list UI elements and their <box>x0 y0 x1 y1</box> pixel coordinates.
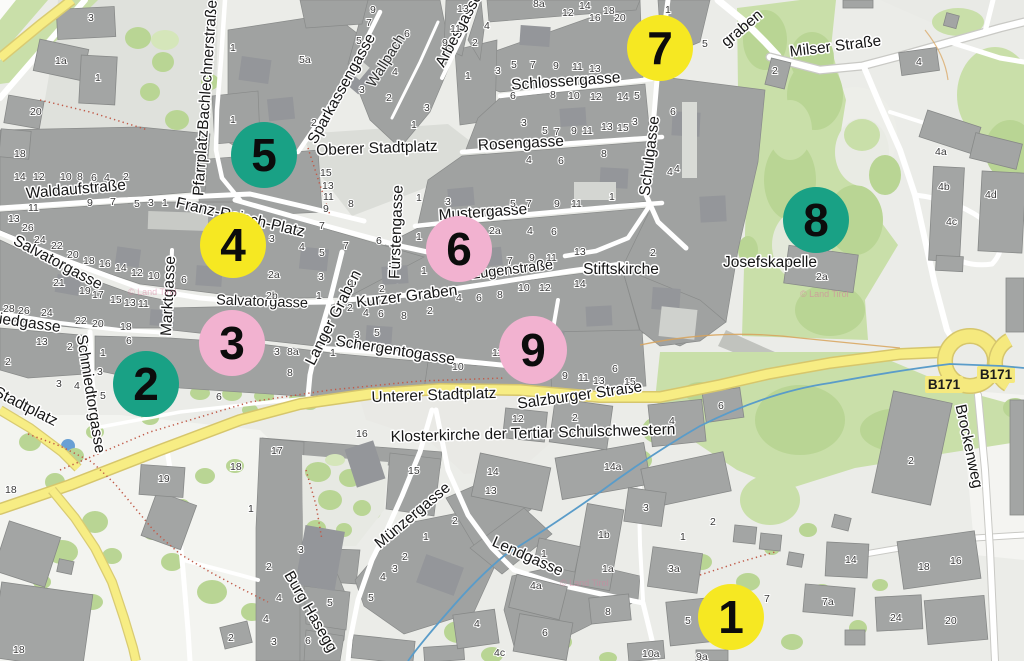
svg-text:8: 8 <box>550 89 556 101</box>
svg-text:3: 3 <box>445 196 451 208</box>
svg-text:3: 3 <box>271 636 277 648</box>
svg-text:6: 6 <box>91 172 97 184</box>
svg-text:11: 11 <box>28 202 39 214</box>
svg-text:1: 1 <box>330 347 336 359</box>
svg-text:12: 12 <box>512 413 524 425</box>
svg-text:26: 26 <box>18 305 30 317</box>
svg-text:4: 4 <box>104 172 110 184</box>
svg-text:14: 14 <box>115 262 127 274</box>
svg-text:5: 5 <box>368 592 374 604</box>
svg-text:Salvatorgasse: Salvatorgasse <box>216 292 308 311</box>
svg-text:3a: 3a <box>668 563 680 575</box>
svg-text:17: 17 <box>271 445 283 457</box>
svg-text:15: 15 <box>624 376 636 388</box>
svg-text:4: 4 <box>474 618 480 630</box>
svg-text:2: 2 <box>228 632 234 644</box>
svg-text:3: 3 <box>148 197 154 209</box>
svg-text:7: 7 <box>110 196 116 208</box>
svg-text:8: 8 <box>77 171 83 183</box>
svg-text:4: 4 <box>363 307 369 319</box>
svg-text:2: 2 <box>772 65 778 77</box>
svg-text:2: 2 <box>379 283 385 295</box>
svg-text:1a: 1a <box>602 563 614 575</box>
svg-text:5: 5 <box>251 129 277 181</box>
svg-text:5: 5 <box>327 597 333 609</box>
svg-text:10: 10 <box>60 171 72 183</box>
svg-text:3: 3 <box>56 378 62 390</box>
svg-text:13: 13 <box>457 3 469 15</box>
svg-text:2a: 2a <box>268 269 280 281</box>
svg-text:6: 6 <box>378 308 384 320</box>
svg-text:4: 4 <box>392 66 398 78</box>
svg-text:11: 11 <box>571 198 582 210</box>
svg-text:2: 2 <box>472 37 478 49</box>
svg-text:13: 13 <box>8 213 20 225</box>
svg-text:9: 9 <box>442 37 448 49</box>
svg-text:9: 9 <box>562 370 568 382</box>
svg-text:6: 6 <box>670 106 676 118</box>
svg-text:15: 15 <box>617 122 629 134</box>
svg-text:13: 13 <box>36 336 48 348</box>
svg-text:1: 1 <box>718 591 744 643</box>
svg-text:13: 13 <box>485 485 497 497</box>
svg-text:18: 18 <box>83 255 95 267</box>
svg-text:5: 5 <box>100 390 106 402</box>
svg-text:4: 4 <box>276 592 282 604</box>
svg-text:28: 28 <box>3 303 15 315</box>
svg-text:5: 5 <box>134 198 140 210</box>
svg-text:8: 8 <box>601 148 607 160</box>
svg-text:9: 9 <box>553 60 559 72</box>
svg-text:13: 13 <box>574 246 586 258</box>
svg-text:5: 5 <box>511 59 517 71</box>
svg-text:2: 2 <box>427 305 433 317</box>
svg-text:9: 9 <box>87 197 93 209</box>
svg-text:20: 20 <box>30 106 42 118</box>
svg-text:2: 2 <box>123 171 129 183</box>
svg-text:4: 4 <box>669 415 675 427</box>
svg-text:8: 8 <box>497 289 503 301</box>
svg-text:10: 10 <box>452 361 464 373</box>
svg-text:2: 2 <box>347 302 353 314</box>
svg-text:4: 4 <box>526 154 532 166</box>
svg-text:9: 9 <box>529 252 535 264</box>
svg-text:3: 3 <box>88 12 94 24</box>
svg-text:3: 3 <box>392 563 398 575</box>
svg-text:14: 14 <box>845 554 857 566</box>
svg-text:14: 14 <box>617 91 629 103</box>
svg-text:6: 6 <box>126 335 132 347</box>
svg-text:10: 10 <box>148 270 160 282</box>
svg-text:13: 13 <box>593 375 605 387</box>
svg-text:10: 10 <box>568 90 580 102</box>
svg-text:6: 6 <box>476 292 482 304</box>
svg-text:2: 2 <box>266 561 272 573</box>
svg-text:4: 4 <box>916 56 922 68</box>
svg-text:4: 4 <box>527 225 533 237</box>
svg-text:7: 7 <box>319 220 325 232</box>
svg-text:19: 19 <box>79 285 91 297</box>
svg-text:14: 14 <box>574 278 586 290</box>
svg-text:9: 9 <box>370 4 376 16</box>
svg-text:6: 6 <box>551 226 557 238</box>
svg-text:1: 1 <box>230 114 236 126</box>
svg-text:7: 7 <box>526 198 532 210</box>
svg-text:8: 8 <box>605 606 611 618</box>
svg-text:15: 15 <box>408 465 420 477</box>
svg-text:6: 6 <box>181 274 187 286</box>
svg-text:16: 16 <box>356 428 368 440</box>
svg-text:24: 24 <box>890 612 902 624</box>
svg-text:1: 1 <box>541 548 547 560</box>
svg-text:3: 3 <box>643 502 649 514</box>
svg-text:3: 3 <box>424 102 430 114</box>
svg-text:8a: 8a <box>533 0 545 10</box>
svg-text:© Land Tirol: © Land Tirol <box>560 578 609 588</box>
svg-text:22: 22 <box>75 315 87 327</box>
svg-text:2: 2 <box>452 515 458 527</box>
svg-text:11: 11 <box>572 61 583 73</box>
svg-text:4: 4 <box>484 20 490 32</box>
svg-text:16: 16 <box>99 258 111 270</box>
svg-text:12: 12 <box>562 7 574 19</box>
svg-text:7: 7 <box>764 593 770 605</box>
svg-text:10a: 10a <box>642 648 660 660</box>
svg-text:2: 2 <box>133 358 159 410</box>
svg-text:6: 6 <box>612 363 618 375</box>
svg-text:13: 13 <box>589 63 601 75</box>
svg-text:18: 18 <box>5 484 17 496</box>
svg-text:11: 11 <box>138 298 149 310</box>
svg-text:18: 18 <box>14 148 26 160</box>
svg-text:9: 9 <box>520 324 546 376</box>
svg-text:B171: B171 <box>980 367 1013 382</box>
svg-text:14: 14 <box>487 466 499 478</box>
svg-text:1: 1 <box>465 70 471 82</box>
svg-text:6: 6 <box>446 223 472 275</box>
svg-text:5: 5 <box>685 615 691 627</box>
svg-text:1: 1 <box>680 531 686 543</box>
svg-text:2: 2 <box>67 341 73 353</box>
svg-text:Fürstengasse: Fürstengasse <box>386 185 406 279</box>
svg-text:5: 5 <box>319 247 325 259</box>
svg-text:1: 1 <box>95 72 101 84</box>
svg-text:1: 1 <box>100 347 106 359</box>
svg-text:2: 2 <box>650 247 656 259</box>
svg-text:11: 11 <box>582 125 593 137</box>
svg-text:6: 6 <box>542 627 548 639</box>
svg-text:4b: 4b <box>938 181 950 193</box>
svg-text:12: 12 <box>33 171 45 183</box>
svg-text:1: 1 <box>162 197 168 209</box>
svg-text:3: 3 <box>269 233 275 245</box>
svg-text:18: 18 <box>230 461 242 473</box>
svg-text:© Land Tirol: © Land Tirol <box>128 287 177 297</box>
svg-text:6: 6 <box>216 391 222 403</box>
svg-text:5: 5 <box>542 125 548 137</box>
svg-text:4: 4 <box>456 292 462 304</box>
svg-text:6: 6 <box>718 400 724 412</box>
svg-text:8a: 8a <box>287 346 299 358</box>
svg-text:4d: 4d <box>985 189 997 201</box>
svg-text:5: 5 <box>634 90 640 102</box>
svg-text:6: 6 <box>558 155 564 167</box>
svg-text:8: 8 <box>401 310 407 322</box>
svg-text:4a: 4a <box>935 146 947 158</box>
svg-text:13: 13 <box>601 121 613 133</box>
svg-text:6: 6 <box>404 28 410 40</box>
svg-text:1: 1 <box>411 119 417 131</box>
svg-text:16: 16 <box>589 12 601 24</box>
svg-text:11: 11 <box>450 23 461 35</box>
svg-text:3: 3 <box>298 544 304 556</box>
svg-text:4: 4 <box>674 163 680 175</box>
svg-text:17: 17 <box>92 289 104 301</box>
svg-text:14: 14 <box>14 171 26 183</box>
svg-text:1: 1 <box>316 290 322 302</box>
svg-text:1: 1 <box>416 192 422 204</box>
svg-text:20: 20 <box>92 318 104 330</box>
svg-text:7: 7 <box>554 126 560 138</box>
svg-text:20: 20 <box>67 249 79 261</box>
svg-text:14a: 14a <box>604 461 622 473</box>
svg-text:3: 3 <box>318 271 324 283</box>
svg-text:Stiftskirche: Stiftskirche <box>583 261 659 278</box>
svg-text:24: 24 <box>41 307 53 319</box>
svg-text:14: 14 <box>579 0 591 12</box>
svg-text:2b: 2b <box>266 290 278 302</box>
svg-text:3: 3 <box>521 117 527 129</box>
svg-text:5: 5 <box>702 38 708 50</box>
svg-text:12: 12 <box>590 91 602 103</box>
svg-text:1a: 1a <box>55 55 67 67</box>
svg-text:2a: 2a <box>816 271 828 283</box>
svg-text:4: 4 <box>667 166 673 178</box>
svg-text:4: 4 <box>263 613 269 625</box>
svg-text:7: 7 <box>647 22 673 74</box>
svg-text:5: 5 <box>510 198 516 210</box>
svg-text:9: 9 <box>554 198 560 210</box>
svg-text:5: 5 <box>356 35 362 47</box>
svg-text:6: 6 <box>305 635 311 647</box>
svg-text:7: 7 <box>530 59 536 71</box>
svg-text:2: 2 <box>311 117 317 129</box>
svg-text:2: 2 <box>402 551 408 563</box>
svg-text:22: 22 <box>51 240 63 252</box>
svg-text:1: 1 <box>416 231 422 243</box>
svg-text:26: 26 <box>22 222 34 234</box>
svg-text:16: 16 <box>950 555 962 567</box>
svg-text:4: 4 <box>299 241 305 253</box>
svg-text:1: 1 <box>421 265 427 277</box>
svg-text:20: 20 <box>614 12 626 24</box>
svg-text:5: 5 <box>374 327 380 339</box>
svg-text:7a: 7a <box>822 596 834 608</box>
svg-text:12: 12 <box>131 267 143 279</box>
svg-text:11: 11 <box>546 252 557 264</box>
svg-text:9a: 9a <box>696 651 708 661</box>
svg-text:9: 9 <box>571 125 577 137</box>
svg-text:7: 7 <box>343 240 349 252</box>
svg-text:4: 4 <box>380 571 386 583</box>
svg-text:4: 4 <box>74 380 80 392</box>
svg-text:6: 6 <box>376 235 382 247</box>
svg-text:3: 3 <box>219 317 245 369</box>
svg-text:2: 2 <box>710 516 716 528</box>
svg-text:18: 18 <box>918 561 930 573</box>
svg-text:2: 2 <box>572 412 578 424</box>
svg-text:10: 10 <box>518 282 530 294</box>
svg-text:2: 2 <box>386 92 392 104</box>
svg-text:3: 3 <box>274 346 280 358</box>
svg-text:3: 3 <box>354 329 360 341</box>
svg-text:9: 9 <box>323 203 329 215</box>
svg-text:Josefskapelle: Josefskapelle <box>723 254 817 271</box>
svg-text:24: 24 <box>34 234 46 246</box>
svg-text:11: 11 <box>323 191 334 203</box>
svg-text:8: 8 <box>287 367 293 379</box>
svg-text:20: 20 <box>945 615 957 627</box>
svg-text:11: 11 <box>578 372 589 384</box>
svg-text:1: 1 <box>349 278 355 290</box>
svg-text:2: 2 <box>908 455 914 467</box>
svg-text:4c: 4c <box>494 647 505 659</box>
svg-text:6: 6 <box>510 90 516 102</box>
svg-text:7: 7 <box>366 17 372 29</box>
svg-text:© Land Tirol: © Land Tirol <box>800 289 849 299</box>
svg-text:5a: 5a <box>299 54 311 66</box>
svg-text:8: 8 <box>348 198 354 210</box>
svg-text:3: 3 <box>97 366 103 378</box>
svg-text:13: 13 <box>124 297 136 309</box>
svg-text:1: 1 <box>609 191 615 203</box>
svg-text:1: 1 <box>665 4 671 16</box>
svg-text:2a: 2a <box>489 225 501 237</box>
svg-text:1: 1 <box>230 42 236 54</box>
svg-text:18: 18 <box>13 644 25 656</box>
svg-text:3: 3 <box>359 84 365 96</box>
svg-text:8: 8 <box>803 194 829 246</box>
svg-text:3: 3 <box>632 116 638 128</box>
svg-text:1: 1 <box>423 531 429 543</box>
svg-text:18: 18 <box>120 321 132 333</box>
svg-text:19: 19 <box>158 473 170 485</box>
svg-text:4c: 4c <box>946 216 957 228</box>
svg-text:2: 2 <box>5 356 11 368</box>
svg-text:1b: 1b <box>598 529 610 541</box>
svg-text:3: 3 <box>495 65 501 77</box>
svg-text:15: 15 <box>110 294 122 306</box>
svg-text:1: 1 <box>248 503 254 515</box>
svg-text:4: 4 <box>220 219 246 271</box>
svg-text:21: 21 <box>53 277 65 289</box>
svg-text:12: 12 <box>539 282 551 294</box>
svg-text:4a: 4a <box>530 580 542 592</box>
svg-text:15: 15 <box>320 167 332 179</box>
svg-text:B171: B171 <box>928 377 961 392</box>
svg-text:7: 7 <box>507 255 513 267</box>
